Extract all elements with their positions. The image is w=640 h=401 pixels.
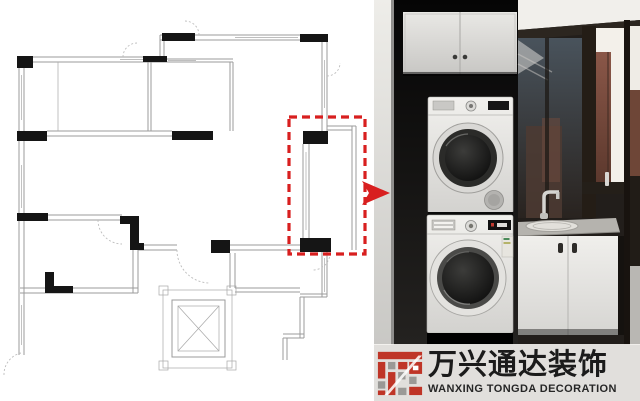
floor-plan: [0, 0, 374, 401]
display: [488, 101, 509, 110]
window-handle-icon: [605, 172, 609, 186]
plan-walls: [19, 35, 356, 360]
brand-name-cn: 万兴通达装饰: [428, 351, 617, 380]
laundry-photo: 万兴通达装饰 WANXING TONGDA DECORATION: [374, 0, 640, 401]
detergent-drawer: [432, 220, 455, 230]
laundry-photo-svg: [374, 0, 640, 401]
detergent-drawer: [433, 101, 454, 110]
floor-plan-svg: [0, 0, 374, 401]
brand-name-en: WANXING TONGDA DECORATION: [428, 383, 617, 395]
elevator-shaft: [159, 286, 236, 370]
cabinet-handle-icon: [558, 243, 563, 253]
watermark: 万兴通达装饰 WANXING TONGDA DECORATION: [374, 344, 640, 401]
building-outside: [596, 52, 611, 188]
overhead-cabinet: [403, 12, 517, 76]
brand-text: 万兴通达装饰 WANXING TONGDA DECORATION: [428, 351, 617, 395]
arrow-right-icon: [356, 176, 396, 210]
sink-basin: [526, 221, 578, 232]
dryer: [428, 97, 513, 213]
cabinet-handle-icon: [572, 243, 577, 253]
plan-columns: [17, 33, 331, 293]
washer: [427, 215, 513, 333]
screenshot-root: 万兴通达装饰 WANXING TONGDA DECORATION: [0, 0, 640, 401]
cabinet-knob-icon: [463, 55, 468, 60]
cabinet-knob-icon: [453, 55, 458, 60]
brand-logo-icon: [377, 350, 423, 396]
